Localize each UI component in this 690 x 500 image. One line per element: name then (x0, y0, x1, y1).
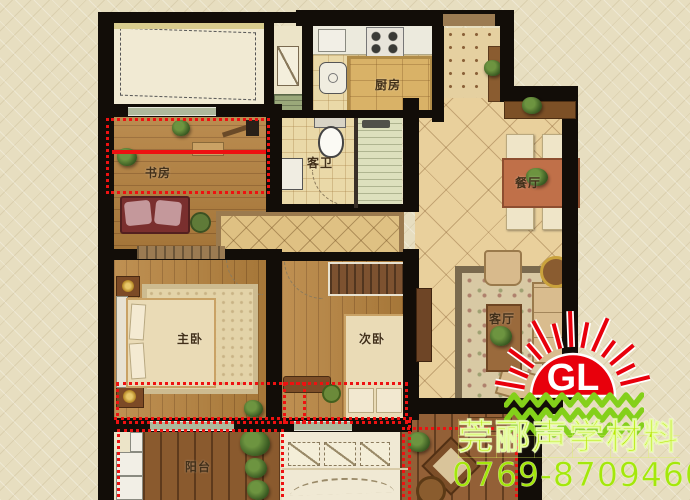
room-label-second-bedroom: 次卧 (350, 330, 394, 347)
wall (403, 98, 419, 212)
gl-sun-logo: GL (488, 298, 663, 402)
stove (366, 27, 404, 57)
tv-cabinet (416, 288, 432, 362)
wall (302, 26, 313, 116)
treatment-line-bottom-wall (114, 417, 412, 420)
bay-divider (282, 468, 408, 470)
floor-plan-image: 书房 主卧 次卧 厨房 客卫 餐厅 客厅 阳台 GL 莞郦声学材料 0769-8… (0, 0, 690, 500)
pillow (129, 304, 146, 341)
terrace-window-band (114, 22, 264, 29)
wall (500, 24, 514, 90)
bay-unit (288, 442, 320, 466)
wardrobe (328, 262, 408, 296)
bay-unit (360, 442, 390, 466)
pillow (129, 343, 146, 380)
utility-cabinet (277, 46, 299, 86)
phone-number: 0769-87094602 (452, 455, 690, 494)
nightstand (116, 276, 140, 297)
room-label-guest-bathroom: 客卫 (298, 154, 342, 171)
room-label-dining-room: 餐厅 (506, 174, 550, 191)
wall (282, 252, 410, 261)
closet (137, 246, 225, 259)
wall (280, 110, 444, 118)
entry-door-lintel (443, 14, 495, 26)
wall (264, 12, 274, 106)
shower-fixture (362, 120, 390, 128)
terrace-floor (114, 22, 264, 106)
study-sofa (120, 196, 190, 234)
armchair (484, 250, 522, 286)
fridge (318, 29, 346, 52)
wall (280, 204, 404, 212)
wall (432, 20, 444, 122)
terrace-dashed-outline (120, 28, 256, 101)
shower-area-floor (358, 118, 402, 208)
wave-line (506, 395, 642, 405)
treatment-line-study (112, 150, 266, 154)
room-label-kitchen: 厨房 (366, 76, 410, 93)
treatment-area-study (106, 118, 270, 194)
wall (354, 118, 358, 208)
treatment-area-balcony (117, 429, 284, 500)
room-label-master-bedroom: 主卧 (168, 330, 212, 347)
bay-unit (324, 442, 356, 466)
kitchen-sink (319, 62, 347, 94)
window (128, 107, 216, 116)
company-name: 莞郦声学材料 (458, 419, 680, 458)
study-stool (190, 212, 211, 233)
plant-icon (522, 97, 542, 114)
